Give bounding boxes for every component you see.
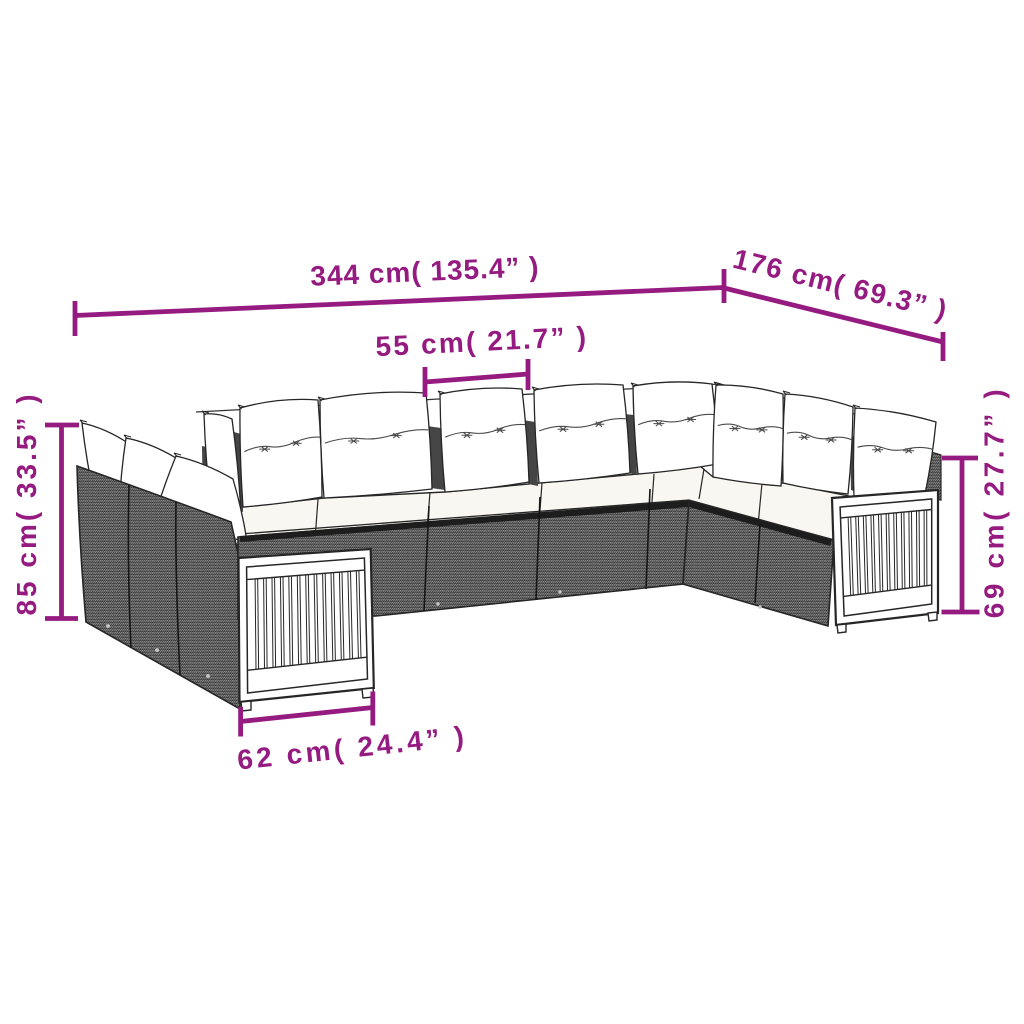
svg-text:69 cm( 27.7” ): 69 cm( 27.7” ) (979, 386, 1010, 619)
svg-text:85 cm( 33.5” ): 85 cm( 33.5” ) (11, 391, 42, 615)
